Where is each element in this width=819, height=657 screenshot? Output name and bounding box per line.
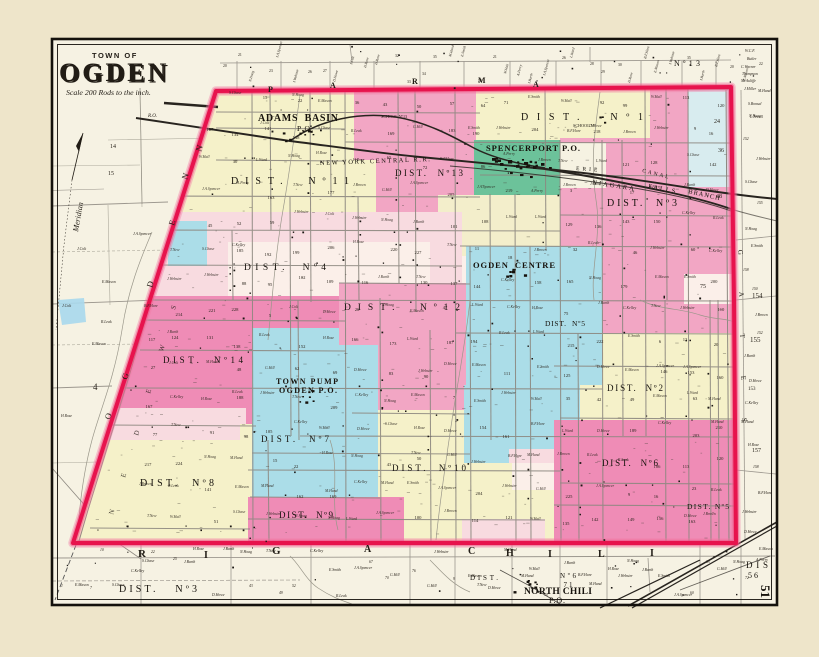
svg-text:E.Mason: E.Mason: [317, 99, 332, 103]
svg-text:152: 152: [743, 137, 749, 141]
svg-text:71: 71: [504, 100, 509, 105]
svg-text:157: 157: [752, 448, 761, 454]
svg-text:120: 120: [717, 456, 725, 461]
svg-text:60: 60: [691, 247, 696, 252]
svg-text:R: R: [412, 77, 418, 86]
svg-text:N.Hoag: N.Hoag: [626, 559, 639, 563]
svg-text:C.Kelley: C.Kelley: [658, 421, 671, 425]
svg-text:H.Rose: H.Rose: [315, 151, 327, 155]
svg-text:S.Chase: S.Chase: [318, 126, 331, 130]
svg-text:98: 98: [244, 434, 249, 439]
svg-text:C.Kelley: C.Kelley: [507, 305, 520, 309]
svg-text:B.F.Hare: B.F.Hare: [567, 129, 581, 133]
svg-text:E.Smith: E.Smith: [328, 568, 341, 572]
svg-text:S.Chase: S.Chase: [112, 583, 125, 587]
svg-text:C.Kelley: C.Kelley: [310, 549, 323, 553]
svg-text:M.Hand: M.Hand: [757, 89, 771, 93]
svg-text:158: 158: [753, 465, 759, 469]
svg-text:203: 203: [693, 433, 701, 438]
svg-text:D.Howe: D.Howe: [743, 530, 757, 534]
svg-text:J.Barth: J.Barth: [590, 182, 601, 186]
svg-text:SPENCERPORT P.O.: SPENCERPORT P.O.: [486, 143, 580, 153]
svg-text:15: 15: [273, 458, 278, 463]
svg-text:43: 43: [383, 102, 388, 107]
svg-text:J.Webster: J.Webster: [204, 273, 219, 277]
svg-text:152: 152: [299, 344, 307, 349]
svg-text:16: 16: [709, 131, 714, 136]
svg-text:E: E: [739, 375, 747, 380]
svg-text:228: 228: [232, 307, 240, 312]
svg-text:W.Hall: W.Hall: [170, 515, 181, 519]
svg-text:153: 153: [748, 387, 756, 392]
svg-text:H.Rose: H.Rose: [352, 158, 364, 162]
svg-text:152: 152: [757, 331, 763, 335]
svg-text:101: 101: [451, 224, 459, 229]
svg-text:C.Kelley: C.Kelley: [232, 243, 245, 247]
svg-text:26: 26: [308, 70, 312, 74]
svg-text:I: I: [650, 548, 654, 559]
svg-text:C.Kelley: C.Kelley: [501, 278, 514, 282]
svg-text:27: 27: [151, 365, 156, 370]
svg-text:75: 75: [564, 311, 569, 316]
svg-text:P: P: [268, 85, 273, 94]
svg-text:177: 177: [328, 190, 336, 195]
svg-text:194: 194: [471, 339, 479, 344]
svg-text:E.Mason: E.Mason: [74, 583, 89, 587]
svg-text:M.Hand: M.Hand: [710, 420, 724, 424]
svg-text:24: 24: [714, 119, 720, 125]
svg-text:21: 21: [238, 53, 242, 57]
svg-text:M.Hand: M.Hand: [588, 582, 602, 586]
svg-text:C.Kelley: C.Kelley: [131, 569, 144, 573]
svg-text:SCHOOL Nº13: SCHOOL Nº13: [381, 114, 407, 119]
svg-text:219: 219: [506, 188, 514, 193]
svg-text:13: 13: [683, 337, 688, 342]
svg-text:S.Bonsal: S.Bonsal: [748, 102, 761, 106]
svg-text:166: 166: [352, 337, 360, 342]
svg-text:D.Howe: D.Howe: [211, 593, 225, 597]
svg-text:L.Ward: L.Ward: [471, 303, 483, 307]
svg-text:142: 142: [710, 162, 718, 167]
svg-text:N.Hoag: N.Hoag: [588, 276, 601, 280]
svg-text:15: 15: [108, 171, 114, 177]
svg-text:141: 141: [265, 126, 273, 131]
svg-text:J.A.Spencer: J.A.Spencer: [354, 566, 373, 570]
svg-text:160: 160: [717, 375, 725, 380]
svg-text:65: 65: [387, 155, 392, 160]
svg-text:T.New: T.New: [651, 304, 661, 308]
svg-text:H.Rose: H.Rose: [531, 306, 543, 310]
svg-text:DIST. Nº3: DIST. Nº3: [119, 584, 197, 595]
svg-text:Nº6: Nº6: [560, 572, 577, 580]
svg-text:70: 70: [385, 576, 389, 580]
svg-text:149: 149: [628, 517, 636, 522]
svg-text:192: 192: [265, 252, 273, 257]
svg-text:DIST. Nº2: DIST. Nº2: [607, 383, 663, 393]
svg-text:E.Smith: E.Smith: [467, 126, 480, 130]
svg-text:J.Barth: J.Barth: [564, 561, 575, 565]
svg-text:165: 165: [567, 279, 575, 284]
svg-text:M.Hand: M.Hand: [503, 548, 517, 552]
svg-text:L: L: [598, 549, 605, 560]
svg-text:183: 183: [449, 128, 457, 133]
svg-text:H.Rose: H.Rose: [352, 240, 364, 244]
svg-text:L.Ward: L.Ward: [345, 517, 357, 521]
svg-text:190: 190: [473, 131, 481, 136]
svg-text:J.Webster: J.Webster: [496, 126, 511, 130]
svg-text:J.A.Spencer: J.A.Spencer: [596, 484, 615, 488]
svg-text:E.Smith: E.Smith: [627, 334, 640, 338]
svg-text:189: 189: [630, 428, 638, 433]
svg-text:76: 76: [412, 569, 416, 573]
svg-text:G.Hill: G.Hill: [390, 573, 400, 577]
svg-text:W.C.F.: W.C.F.: [745, 49, 755, 53]
svg-text:J.Barth: J.Barth: [684, 183, 695, 187]
svg-text:144: 144: [474, 284, 482, 289]
svg-text:R.Leak: R.Leak: [586, 453, 598, 457]
svg-text:DIST. Nº13: DIST. Nº13: [395, 168, 464, 178]
svg-text:225: 225: [566, 494, 574, 499]
svg-text:B.F.Hare: B.F.Hare: [440, 157, 454, 161]
svg-text:117: 117: [149, 337, 156, 342]
svg-text:N.Hoag: N.Hoag: [744, 227, 757, 231]
svg-text:C.Kelley: C.Kelley: [354, 480, 367, 484]
svg-text:A: A: [737, 291, 745, 297]
svg-text:14: 14: [110, 144, 116, 150]
svg-text:158: 158: [743, 268, 749, 272]
svg-text:E.Smith: E.Smith: [473, 399, 486, 403]
svg-text:J.A.Spencer: J.A.Spencer: [410, 181, 429, 185]
svg-text:A.Perry: A.Perry: [236, 181, 249, 185]
svg-text:22: 22: [298, 98, 303, 103]
svg-text:124: 124: [172, 335, 180, 340]
svg-text:179: 179: [621, 284, 629, 289]
svg-text:J.Barth: J.Barth: [642, 568, 653, 572]
svg-text:L.Ward: L.Ward: [255, 158, 267, 162]
svg-text:P.O.: P.O.: [549, 596, 565, 605]
svg-text:E.Smith: E.Smith: [683, 275, 696, 279]
svg-text:51: 51: [214, 519, 219, 524]
svg-text:154: 154: [480, 425, 488, 430]
svg-text:H.Rose: H.Rose: [322, 336, 334, 340]
svg-text:J.A.Spencer: J.A.Spencer: [133, 232, 152, 236]
svg-text:T.New: T.New: [266, 549, 276, 553]
svg-text:11: 11: [475, 246, 480, 251]
svg-text:J.Colt: J.Colt: [289, 305, 299, 309]
svg-text:R.Leak: R.Leak: [335, 594, 347, 598]
svg-text:S.Chase: S.Chase: [233, 510, 246, 514]
svg-text:D.Howe: D.Howe: [443, 429, 457, 433]
svg-text:T.New: T.New: [147, 514, 157, 518]
svg-text:J.Brown: J.Brown: [563, 183, 576, 187]
svg-text:205: 205: [448, 192, 456, 197]
svg-text:18: 18: [508, 255, 513, 260]
svg-text:137: 137: [451, 281, 459, 286]
svg-text:222: 222: [597, 339, 605, 344]
svg-text:26: 26: [562, 56, 566, 60]
svg-text:127: 127: [207, 127, 215, 132]
svg-text:L.Ward: L.Ward: [595, 159, 607, 163]
svg-text:86: 86: [481, 164, 486, 169]
svg-text:209: 209: [331, 405, 339, 410]
svg-text:H.Rose: H.Rose: [321, 451, 333, 455]
svg-text:R.Leak: R.Leak: [587, 241, 599, 245]
svg-text:J.Brown: J.Brown: [534, 248, 547, 252]
svg-text:N.Hoag: N.Hoag: [383, 399, 396, 403]
svg-text:A.Perry: A.Perry: [502, 152, 515, 156]
svg-text:T.New: T.New: [447, 243, 457, 247]
svg-text:63: 63: [693, 396, 698, 401]
svg-text:17: 17: [630, 190, 635, 195]
svg-text:S.Chase: S.Chase: [202, 247, 215, 251]
svg-text:188: 188: [237, 395, 245, 400]
svg-text:R.Leak: R.Leak: [231, 390, 243, 394]
svg-text:OGDEN P.O.: OGDEN P.O.: [279, 386, 337, 395]
svg-text:R.Leak: R.Leak: [498, 331, 510, 335]
svg-text:49: 49: [279, 591, 283, 595]
svg-text:92: 92: [600, 100, 605, 105]
svg-text:R.Leak: R.Leak: [167, 484, 179, 488]
svg-text:155: 155: [750, 336, 761, 344]
svg-text:57: 57: [450, 101, 455, 106]
svg-text:D.Howe: D.Howe: [588, 124, 602, 128]
svg-text:W.Hall: W.Hall: [529, 567, 540, 571]
svg-text:111: 111: [504, 371, 511, 376]
svg-text:J.Barth: J.Barth: [223, 547, 234, 551]
svg-text:36: 36: [355, 100, 360, 105]
svg-text:J.Webster: J.Webster: [742, 510, 757, 514]
svg-text:J.Colt: J.Colt: [77, 247, 87, 251]
svg-text:DIST. Nº5: DIST. Nº5: [687, 502, 729, 511]
svg-text:185: 185: [237, 248, 245, 253]
svg-text:I: I: [204, 550, 208, 561]
svg-text:W.Hall: W.Hall: [561, 99, 572, 103]
svg-text:C.Kelley: C.Kelley: [623, 306, 636, 310]
svg-text:D.Howe: D.Howe: [443, 362, 457, 366]
svg-text:214: 214: [176, 312, 184, 317]
svg-text:J.Colt: J.Colt: [62, 304, 72, 308]
svg-text:26: 26: [355, 307, 360, 312]
svg-text:H.Rose: H.Rose: [200, 397, 212, 401]
svg-text:R.Leak: R.Leak: [710, 488, 722, 492]
svg-text:36: 36: [718, 148, 724, 154]
svg-text:204: 204: [476, 491, 484, 496]
svg-text:J.Webster: J.Webster: [260, 391, 275, 395]
svg-text:105: 105: [266, 429, 274, 434]
svg-text:138: 138: [234, 344, 242, 349]
svg-text:D.Howe: D.Howe: [356, 427, 370, 431]
svg-text:J.A.Spencer: J.A.Spencer: [477, 185, 496, 189]
svg-text:120: 120: [718, 103, 726, 108]
svg-text:TOWN PUMP: TOWN PUMP: [276, 377, 338, 386]
svg-text:H.Rose: H.Rose: [192, 547, 204, 551]
svg-text:62: 62: [295, 366, 300, 371]
svg-text:169: 169: [330, 494, 338, 499]
svg-text:M.Hand: M.Hand: [707, 397, 721, 401]
svg-text:L.Ward: L.Ward: [534, 215, 546, 219]
svg-text:167: 167: [146, 404, 154, 409]
svg-text:J.Webster: J.Webster: [654, 126, 669, 130]
svg-text:E.Mason: E.Mason: [471, 363, 486, 367]
svg-text:49: 49: [630, 397, 635, 402]
svg-text:15: 15: [263, 95, 268, 100]
svg-text:153: 153: [688, 370, 696, 375]
svg-text:J.Webster: J.Webster: [434, 550, 449, 554]
svg-text:215: 215: [568, 343, 576, 348]
svg-text:A: A: [364, 544, 372, 555]
svg-text:D.Howe: D.Howe: [596, 429, 610, 433]
svg-text:1: 1: [61, 584, 63, 588]
svg-text:L.Ward: L.Ward: [561, 429, 573, 433]
svg-text:D.Howe: D.Howe: [748, 379, 762, 383]
svg-text:G.Hill: G.Hill: [536, 487, 546, 491]
svg-text:131: 131: [207, 335, 215, 340]
svg-text:T.New: T.New: [292, 395, 302, 399]
svg-text:ADAMS BASIN: ADAMS BASIN: [258, 113, 339, 124]
svg-text:150: 150: [654, 219, 662, 224]
svg-text:C.Kelley: C.Kelley: [170, 395, 183, 399]
svg-text:J.A.Spencer: J.A.Spencer: [202, 187, 221, 191]
svg-text:88: 88: [242, 281, 247, 286]
svg-text:22: 22: [294, 464, 299, 469]
svg-text:20: 20: [223, 64, 227, 68]
svg-text:51: 51: [758, 585, 773, 598]
svg-text:J.Barth: J.Barth: [413, 220, 424, 224]
svg-text:J.Colt: J.Colt: [325, 212, 335, 216]
svg-text:72: 72: [745, 576, 749, 580]
svg-text:B.F.Hare: B.F.Hare: [508, 454, 522, 458]
svg-text:114: 114: [472, 518, 479, 523]
svg-text:155: 155: [757, 201, 763, 205]
svg-text:173: 173: [390, 341, 398, 346]
svg-text:128: 128: [651, 160, 659, 165]
svg-text:22: 22: [151, 550, 155, 554]
svg-text:E.Mason: E.Mason: [758, 547, 773, 551]
svg-text:E.Smith: E.Smith: [406, 481, 419, 485]
svg-text:L.Ward: L.Ward: [406, 337, 418, 341]
svg-text:E.Mason: E.Mason: [234, 485, 249, 489]
svg-text:T.New: T.New: [171, 423, 181, 427]
svg-text:N.Hoag: N.Hoag: [291, 93, 304, 97]
svg-text:DIST. Nº10: DIST. Nº10: [392, 463, 467, 473]
svg-text:G.Hill: G.Hill: [427, 584, 437, 588]
svg-text:50: 50: [417, 104, 422, 109]
svg-text:E.Mason: E.Mason: [467, 574, 482, 578]
svg-text:135: 135: [563, 521, 571, 526]
svg-text:J.Miller: J.Miller: [744, 87, 757, 91]
svg-text:J.Webster: J.Webster: [294, 210, 309, 214]
svg-text:21: 21: [493, 55, 497, 59]
svg-text:200: 200: [711, 279, 719, 284]
svg-text:H.Rose: H.Rose: [747, 443, 759, 447]
svg-text:150: 150: [752, 287, 758, 291]
svg-text:M.Hand: M.Hand: [380, 481, 394, 485]
svg-text:T.New: T.New: [293, 183, 303, 187]
svg-text:L.Ward: L.Ward: [532, 330, 544, 334]
svg-text:23: 23: [692, 486, 697, 491]
svg-text:J.A.Spencer: J.A.Spencer: [683, 365, 702, 369]
svg-text:DIST. Nº6: DIST. Nº6: [602, 458, 659, 468]
svg-text:30: 30: [544, 593, 548, 597]
svg-text:B.F.Hare: B.F.Hare: [531, 422, 545, 426]
svg-text:W.Hall: W.Hall: [531, 397, 542, 401]
svg-text:D.Howe: D.Howe: [683, 514, 697, 518]
svg-text:J.Barth: J.Barth: [378, 275, 389, 279]
svg-text:48: 48: [237, 367, 242, 372]
svg-text:162: 162: [297, 494, 305, 499]
svg-text:C: C: [468, 546, 475, 557]
svg-text:DIST. Nº5: DIST. Nº5: [545, 319, 585, 328]
svg-text:30: 30: [618, 63, 622, 67]
svg-text:32: 32: [573, 247, 578, 252]
svg-text:50: 50: [417, 456, 422, 461]
svg-text:M.Hand: M.Hand: [205, 360, 219, 364]
svg-text:J.Webster: J.Webster: [501, 391, 516, 395]
svg-text:H.Rose: H.Rose: [60, 414, 72, 418]
svg-text:J.Brown: J.Brown: [538, 158, 551, 162]
svg-text:121: 121: [506, 515, 514, 520]
svg-text:H.Rose: H.Rose: [607, 567, 619, 571]
svg-text:72: 72: [423, 165, 428, 170]
svg-text:N.Hoag: N.Hoag: [239, 550, 252, 554]
svg-text:129: 129: [566, 222, 574, 227]
svg-text:J.Webster: J.Webster: [471, 460, 486, 464]
svg-text:83: 83: [389, 371, 394, 376]
svg-text:J.Webster: J.Webster: [167, 277, 182, 281]
svg-text:M.Hand: M.Hand: [229, 456, 243, 460]
svg-text:20: 20: [478, 79, 482, 83]
svg-text:G: G: [736, 249, 744, 255]
svg-text:E.Mason: E.Mason: [91, 342, 106, 346]
svg-text:90: 90: [424, 374, 429, 379]
svg-text:142: 142: [592, 517, 600, 522]
svg-text:199: 199: [293, 250, 301, 255]
svg-text:W.Hall: W.Hall: [199, 155, 210, 159]
svg-text:S.Chase: S.Chase: [687, 153, 700, 157]
svg-text:Scale 200 Rods to the inch.: Scale 200 Rods to the inch.: [66, 88, 151, 97]
svg-text:N.Hoag: N.Hoag: [381, 303, 394, 307]
svg-text:E.Smith: E.Smith: [536, 365, 549, 369]
svg-text:G.Hill: G.Hill: [413, 125, 423, 129]
svg-text:N.Hoag: N.Hoag: [203, 455, 216, 459]
svg-text:E.Mason: E.Mason: [101, 280, 116, 284]
svg-text:60: 60: [690, 591, 694, 595]
svg-text:47: 47: [443, 305, 448, 310]
svg-text:163: 163: [689, 519, 697, 524]
svg-text:C.Kelley: C.Kelley: [294, 420, 307, 424]
svg-text:29: 29: [601, 70, 605, 74]
svg-text:161: 161: [503, 434, 511, 439]
svg-text:T.New: T.New: [170, 248, 180, 252]
svg-text:63: 63: [706, 560, 710, 564]
svg-text:C.Kelley: C.Kelley: [355, 393, 368, 397]
svg-text:156: 156: [657, 516, 665, 521]
svg-text:J.Barth: J.Barth: [744, 354, 755, 358]
svg-text:T.New: T.New: [477, 583, 487, 587]
svg-text:30: 30: [233, 159, 238, 164]
svg-text:E.Mason: E.Mason: [409, 309, 424, 313]
svg-text:20: 20: [714, 342, 719, 347]
svg-text:113: 113: [683, 95, 690, 100]
svg-text:J.Barth: J.Barth: [598, 301, 609, 305]
svg-text:J.A.Spencer: J.A.Spencer: [438, 486, 457, 490]
svg-text:G.Hill: G.Hill: [382, 188, 392, 192]
svg-text:E.Smith: E.Smith: [750, 244, 763, 248]
svg-text:116: 116: [362, 280, 369, 285]
svg-text:95: 95: [268, 282, 273, 287]
svg-text:130: 130: [421, 280, 429, 285]
svg-text:34: 34: [422, 72, 426, 76]
